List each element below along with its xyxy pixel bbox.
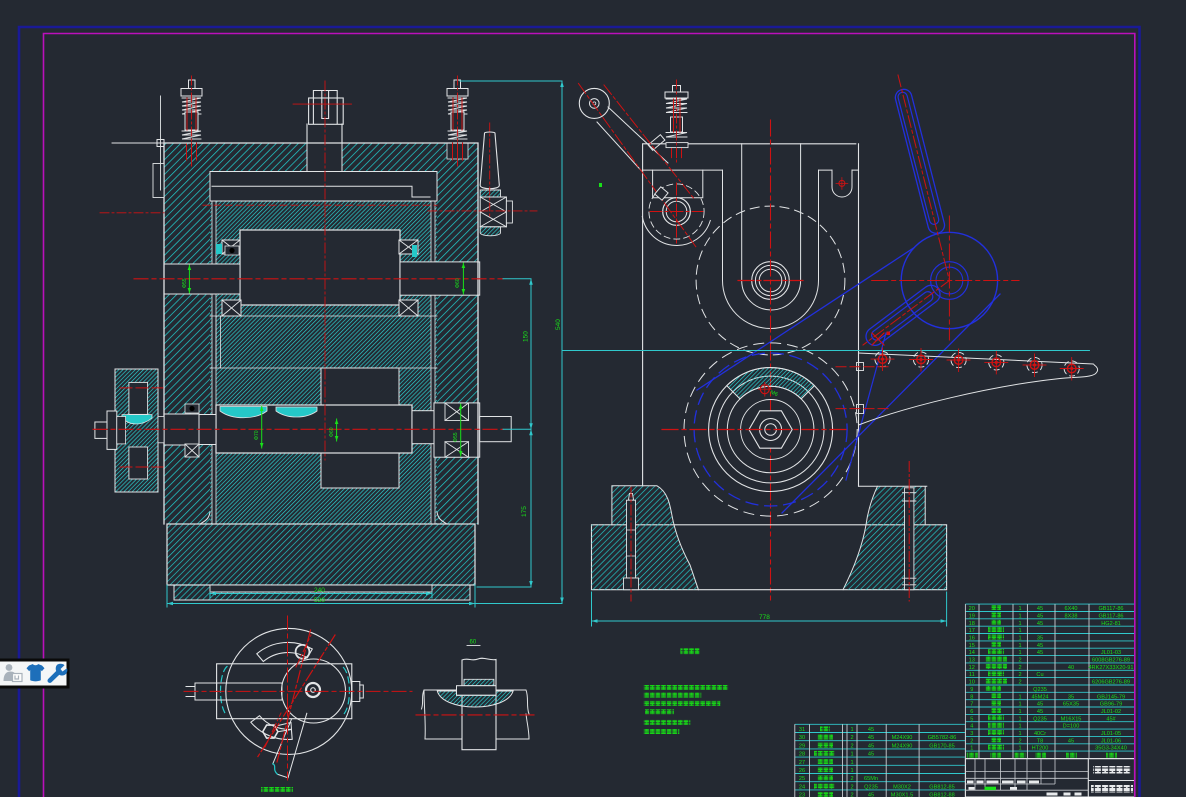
svg-text:5: 5 <box>970 716 973 722</box>
svg-text:540: 540 <box>555 319 562 330</box>
svg-text:26: 26 <box>799 768 805 774</box>
svg-text:JL01-03: JL01-03 <box>1101 650 1121 656</box>
svg-text:GB96-79: GB96-79 <box>1100 702 1122 708</box>
svg-text:45: 45 <box>1037 650 1043 656</box>
svg-text:1: 1 <box>1018 746 1021 752</box>
svg-text:6: 6 <box>970 709 973 715</box>
svg-text:23: 23 <box>799 793 805 797</box>
svg-text:28: 28 <box>799 752 805 758</box>
svg-text:1: 1 <box>1018 636 1021 642</box>
svg-text:2: 2 <box>1018 658 1021 664</box>
svg-text:6X40: 6X40 <box>1064 606 1077 612</box>
svg-text:2: 2 <box>850 776 853 782</box>
svg-text:10: 10 <box>969 680 975 686</box>
svg-text:GBJ145-79: GBJ145-79 <box>1097 694 1125 700</box>
svg-text:8: 8 <box>970 694 973 700</box>
svg-text:Q235: Q235 <box>1033 687 1047 693</box>
svg-text:45: 45 <box>1068 738 1074 744</box>
svg-text:15: 15 <box>969 643 975 649</box>
svg-text:45: 45 <box>868 727 874 733</box>
svg-text:1: 1 <box>1018 650 1021 656</box>
svg-text:Q235: Q235 <box>1033 716 1047 722</box>
svg-text:65X35: 65X35 <box>1063 702 1079 708</box>
svg-text:2: 2 <box>970 738 973 744</box>
svg-text:GB5782-86: GB5782-86 <box>928 735 957 741</box>
svg-text:D=100: D=100 <box>1063 724 1080 730</box>
svg-text:35: 35 <box>1037 636 1043 642</box>
svg-text:6206GB276-89: 6206GB276-89 <box>1092 680 1130 686</box>
svg-text:Φ70: Φ70 <box>254 430 260 440</box>
svg-text:1: 1 <box>1018 702 1021 708</box>
svg-text:M30X2: M30X2 <box>893 784 911 790</box>
svg-text:2: 2 <box>1018 738 1021 744</box>
svg-text:GB117-86: GB117-86 <box>1098 606 1123 612</box>
svg-text:Φ60: Φ60 <box>455 278 461 288</box>
svg-text:1: 1 <box>1018 643 1021 649</box>
svg-text:7: 7 <box>970 702 973 708</box>
svg-text:35: 35 <box>1068 694 1074 700</box>
svg-text:1: 1 <box>850 727 853 733</box>
svg-text:1: 1 <box>850 752 853 758</box>
svg-text:9: 9 <box>970 687 973 693</box>
svg-text:45#: 45# <box>1106 716 1116 722</box>
svg-text:530: 530 <box>314 597 325 604</box>
svg-text:24: 24 <box>799 784 805 790</box>
svg-text:778: 778 <box>759 614 770 621</box>
svg-text:150: 150 <box>523 331 530 342</box>
svg-text:T8: T8 <box>1037 738 1044 744</box>
svg-text:M30X1.5: M30X1.5 <box>891 793 913 797</box>
svg-text:JL01-02: JL01-02 <box>1101 709 1121 715</box>
svg-text:6008GB276-89: 6008GB276-89 <box>1092 658 1130 664</box>
svg-text:M24X90: M24X90 <box>892 743 913 749</box>
svg-text:17: 17 <box>969 628 975 634</box>
svg-text:1: 1 <box>1018 724 1021 730</box>
svg-text:40Cr: 40Cr <box>1034 731 1046 737</box>
svg-text:1: 1 <box>1018 731 1021 737</box>
svg-text:8X38: 8X38 <box>1064 613 1077 619</box>
svg-text:JL01-06: JL01-06 <box>1101 738 1121 744</box>
svg-text:45: 45 <box>868 735 874 741</box>
svg-text:1: 1 <box>1018 709 1021 715</box>
svg-text:1: 1 <box>1018 621 1021 627</box>
svg-text:4: 4 <box>970 724 973 730</box>
svg-text:1: 1 <box>850 768 853 774</box>
svg-text:3: 3 <box>970 731 973 737</box>
svg-text:25: 25 <box>799 776 805 782</box>
svg-text:16: 16 <box>969 636 975 642</box>
svg-text:14: 14 <box>969 650 975 656</box>
svg-text:2: 2 <box>850 784 853 790</box>
svg-text:GB812-88: GB812-88 <box>929 793 955 797</box>
svg-text:1: 1 <box>850 760 853 766</box>
svg-text:65Mn: 65Mn <box>864 776 878 782</box>
svg-text:2: 2 <box>1018 672 1021 678</box>
svg-text:45: 45 <box>868 752 874 758</box>
svg-text:45: 45 <box>1037 606 1043 612</box>
svg-text:30: 30 <box>799 735 805 741</box>
svg-text:11: 11 <box>969 672 975 678</box>
svg-text:20: 20 <box>969 606 975 612</box>
svg-text:2: 2 <box>850 735 853 741</box>
svg-text:45M24: 45M24 <box>1031 694 1048 700</box>
svg-text:18: 18 <box>969 621 975 627</box>
svg-text:1: 1 <box>1018 694 1021 700</box>
svg-text:45: 45 <box>1037 613 1043 619</box>
svg-text:27: 27 <box>799 760 805 766</box>
svg-text:31: 31 <box>799 727 805 733</box>
svg-text:Q235: Q235 <box>864 784 878 790</box>
svg-text:13: 13 <box>969 658 975 664</box>
svg-text:1: 1 <box>1018 628 1021 634</box>
svg-text:Φ60: Φ60 <box>329 427 335 437</box>
svg-text:HT200: HT200 <box>1032 746 1049 752</box>
svg-text:GB117-86: GB117-86 <box>1098 613 1123 619</box>
svg-text:HG2-81: HG2-81 <box>1101 621 1121 627</box>
svg-text:M24X90: M24X90 <box>892 735 913 741</box>
svg-text:45: 45 <box>1037 621 1043 627</box>
svg-text:Φ55: Φ55 <box>453 432 459 442</box>
svg-text:19: 19 <box>969 613 975 619</box>
svg-text:1: 1 <box>1018 613 1021 619</box>
svg-text:240: 240 <box>314 587 325 594</box>
svg-text:M16X15: M16X15 <box>1061 716 1082 722</box>
svg-text:35G3-34X40: 35G3-34X40 <box>1095 746 1127 752</box>
svg-text:2: 2 <box>1018 680 1021 686</box>
svg-text:2: 2 <box>1018 665 1021 671</box>
svg-text:2: 2 <box>850 793 853 797</box>
svg-text:40: 40 <box>1068 665 1074 671</box>
svg-text:Φ55: Φ55 <box>182 278 188 288</box>
svg-text:1: 1 <box>970 746 973 752</box>
svg-text:45: 45 <box>868 743 874 749</box>
svg-text:45: 45 <box>868 793 874 797</box>
svg-text:GB812-85: GB812-85 <box>929 784 955 790</box>
svg-text:Cu: Cu <box>1036 672 1043 678</box>
svg-text:45: 45 <box>1037 643 1043 649</box>
svg-text:12: 12 <box>969 665 975 671</box>
svg-text:2: 2 <box>850 743 853 749</box>
svg-text:175: 175 <box>521 506 528 517</box>
svg-text:JL01-05: JL01-05 <box>1101 731 1121 737</box>
svg-text:1: 1 <box>1018 606 1021 612</box>
svg-text:1: 1 <box>1018 716 1021 722</box>
svg-text:29: 29 <box>799 743 805 749</box>
svg-text:45: 45 <box>1037 702 1043 708</box>
svg-text:4RK27X33X20-91: 4RK27X33X20-91 <box>1088 665 1133 671</box>
svg-text:GB170-85: GB170-85 <box>929 743 955 749</box>
svg-text:60: 60 <box>470 640 477 646</box>
svg-text:45: 45 <box>1037 709 1043 715</box>
